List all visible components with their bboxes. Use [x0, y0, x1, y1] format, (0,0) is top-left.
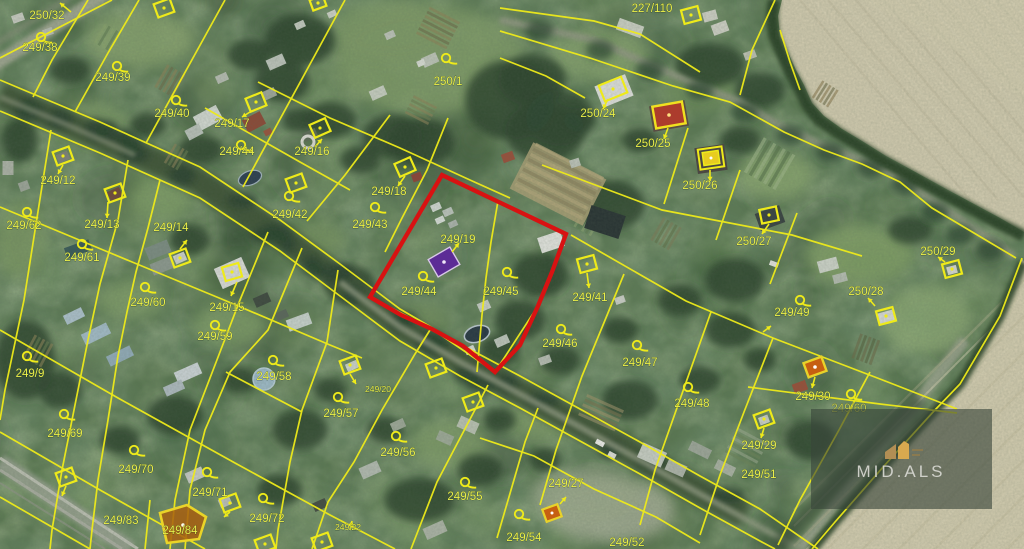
svg-text:249/60: 249/60	[130, 297, 165, 309]
svg-text:249/9: 249/9	[16, 368, 45, 380]
svg-text:249/46: 249/46	[542, 338, 577, 350]
svg-text:249/58: 249/58	[256, 371, 291, 383]
svg-text:249/30: 249/30	[795, 391, 830, 403]
svg-text:249/44: 249/44	[219, 146, 255, 158]
svg-text:249/14: 249/14	[153, 222, 189, 234]
svg-text:249/59: 249/59	[197, 331, 232, 343]
svg-text:249/41: 249/41	[572, 292, 607, 304]
svg-text:250/24: 250/24	[580, 108, 616, 120]
svg-text:249/72: 249/72	[249, 513, 284, 525]
svg-text:249/19: 249/19	[440, 234, 475, 246]
svg-text:249/29: 249/29	[741, 440, 776, 452]
svg-text:249/54: 249/54	[506, 532, 542, 544]
svg-text:249/15: 249/15	[209, 302, 244, 314]
svg-text:249/69: 249/69	[47, 428, 82, 440]
svg-text:227/110: 227/110	[632, 3, 673, 15]
svg-text:250/32: 250/32	[29, 10, 64, 22]
svg-text:249/13: 249/13	[84, 219, 119, 231]
svg-text:249/57: 249/57	[323, 408, 358, 420]
svg-text:249/12: 249/12	[40, 175, 75, 187]
svg-text:249/62: 249/62	[6, 220, 41, 232]
svg-text:249/51: 249/51	[741, 469, 776, 481]
svg-text:249/55: 249/55	[447, 491, 482, 503]
svg-text:249/27: 249/27	[548, 478, 583, 490]
svg-text:249/56: 249/56	[380, 447, 415, 459]
svg-text:249/84: 249/84	[162, 525, 198, 537]
svg-text:249/17: 249/17	[214, 118, 249, 130]
svg-text:250/26: 250/26	[682, 180, 717, 192]
svg-text:MID.ALS: MID.ALS	[856, 462, 945, 481]
svg-text:250/1: 250/1	[434, 76, 463, 88]
svg-text:249/83: 249/83	[103, 515, 138, 527]
svg-text:249/61: 249/61	[64, 252, 99, 264]
svg-text:250/25: 250/25	[635, 138, 670, 150]
svg-text:249/48: 249/48	[674, 398, 709, 410]
svg-text:249/39: 249/39	[95, 72, 130, 84]
svg-text:249/40: 249/40	[154, 108, 189, 120]
svg-text:249/38: 249/38	[22, 42, 57, 54]
svg-text:249/42: 249/42	[272, 209, 307, 221]
svg-text:249/18: 249/18	[371, 186, 406, 198]
svg-text:249/43: 249/43	[352, 219, 387, 231]
svg-text:249/71: 249/71	[192, 487, 227, 499]
svg-text:249/16: 249/16	[294, 146, 329, 158]
svg-text:249/45: 249/45	[483, 286, 518, 298]
svg-text:250/29: 250/29	[920, 246, 955, 258]
svg-text:249/49: 249/49	[774, 307, 809, 319]
svg-text:249/20: 249/20	[365, 384, 391, 394]
svg-text:249/52: 249/52	[609, 537, 644, 549]
svg-text:249/47: 249/47	[622, 357, 657, 369]
svg-text:249/22: 249/22	[335, 522, 361, 532]
svg-text:249/44: 249/44	[401, 286, 437, 298]
svg-text:250/27: 250/27	[736, 236, 771, 248]
svg-text:249/70: 249/70	[118, 464, 153, 476]
svg-text:250/28: 250/28	[848, 286, 883, 298]
